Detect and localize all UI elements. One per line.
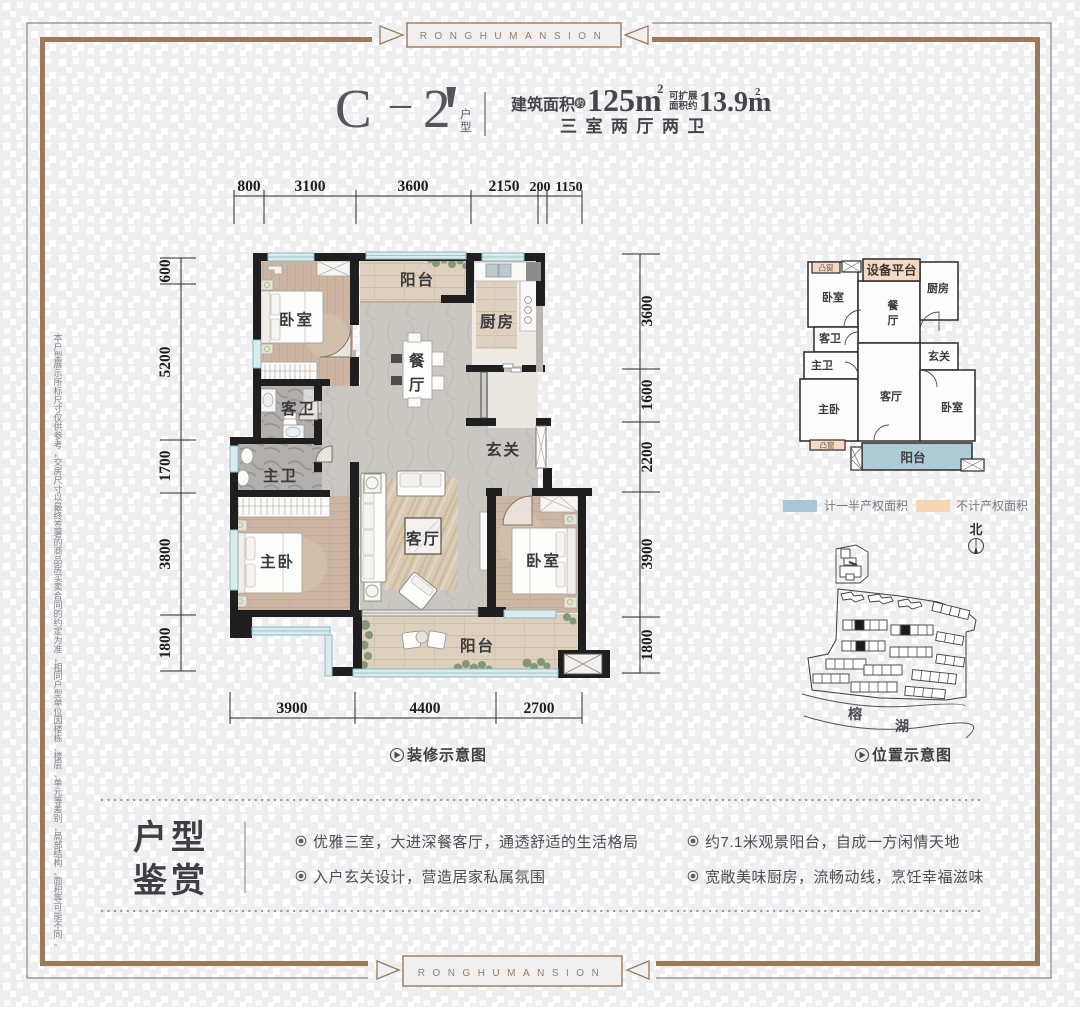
- svg-text:主卧: 主卧: [818, 402, 840, 416]
- svg-text:–: –: [389, 81, 412, 127]
- svg-text:厅: 厅: [888, 314, 899, 327]
- svg-text:2700: 2700: [524, 700, 555, 717]
- svg-text:凸窗: 凸窗: [819, 263, 834, 273]
- svg-text:客卫: 客卫: [818, 331, 841, 345]
- svg-text:设备平台: 设备平台: [866, 263, 916, 278]
- svg-text:湖: 湖: [895, 718, 909, 734]
- svg-text:本户型展示所标尺寸仅供参考，交房尺寸以最终签署的商品房买卖合: 本户型展示所标尺寸仅供参考，交房尺寸以最终签署的商品房买卖合同的约定为准，相同户…: [53, 332, 62, 948]
- svg-text:位置示意图: 位置示意图: [872, 746, 952, 764]
- svg-text:主卫: 主卫: [811, 358, 833, 372]
- svg-text:厅: 厅: [409, 376, 427, 394]
- svg-text:主卫: 主卫: [263, 466, 298, 485]
- svg-text:卧室: 卧室: [526, 551, 561, 570]
- svg-text:户型: 户型: [133, 819, 209, 857]
- svg-text:1800: 1800: [157, 627, 174, 658]
- svg-text:2150: 2150: [489, 178, 520, 195]
- svg-text:2: 2: [423, 78, 451, 139]
- svg-text:阳台: 阳台: [400, 270, 435, 289]
- svg-text:榕: 榕: [848, 706, 863, 722]
- svg-text:RONGHUMANSION: RONGHUMANSION: [420, 31, 609, 42]
- svg-text:客厅: 客厅: [879, 389, 902, 403]
- svg-text:计一半产权面积: 计一半产权面积: [824, 499, 908, 513]
- svg-text:宽敞美味厨房，流畅动线，烹饪幸福滋味: 宽敞美味厨房，流畅动线，烹饪幸福滋味: [705, 868, 984, 886]
- svg-text:不计产权面积: 不计产权面积: [956, 499, 1028, 513]
- svg-text:玄关: 玄关: [928, 349, 950, 363]
- svg-text:约7.1米观景阳台，自成一方闲情天地: 约7.1米观景阳台，自成一方闲情天地: [705, 834, 960, 851]
- svg-text:1800: 1800: [639, 629, 656, 660]
- svg-text:客厅: 客厅: [406, 529, 441, 548]
- svg-text:5200: 5200: [157, 346, 174, 377]
- svg-text:3900: 3900: [277, 700, 308, 717]
- svg-text:餐: 餐: [887, 298, 900, 312]
- svg-text:3800: 3800: [157, 538, 174, 569]
- svg-text:卧室: 卧室: [941, 400, 963, 414]
- svg-text:3600: 3600: [398, 178, 429, 195]
- svg-text:厨房: 厨房: [927, 281, 949, 295]
- svg-text:餐: 餐: [408, 351, 427, 370]
- svg-text:三室两厅两卫: 三室两厅两卫: [560, 116, 713, 136]
- svg-text:主卧: 主卧: [260, 552, 295, 571]
- svg-text:2: 2: [755, 86, 761, 98]
- svg-text:卧室: 卧室: [279, 310, 314, 329]
- svg-text:2: 2: [657, 81, 664, 96]
- svg-text:约: 约: [576, 98, 584, 108]
- svg-text:1150: 1150: [555, 180, 582, 195]
- svg-text:鉴赏: 鉴赏: [132, 862, 209, 900]
- svg-text:户: 户: [460, 107, 472, 121]
- svg-text:优雅三室，大进深餐客厅，通透舒适的生活格局: 优雅三室，大进深餐客厅，通透舒适的生活格局: [313, 834, 639, 851]
- svg-text:3900: 3900: [639, 538, 656, 569]
- svg-text:C: C: [335, 78, 372, 139]
- svg-text:面积约: 面积约: [669, 100, 698, 112]
- svg-text:阳台: 阳台: [900, 450, 925, 465]
- svg-text:阳台: 阳台: [460, 636, 495, 655]
- svg-text:厨房: 厨房: [480, 312, 515, 331]
- svg-text:800: 800: [237, 178, 261, 195]
- svg-text:入户玄关设计，营造居家私属氛围: 入户玄关设计，营造居家私属氛围: [313, 869, 546, 886]
- svg-text:客卫: 客卫: [281, 399, 316, 418]
- svg-text:3600: 3600: [639, 295, 656, 326]
- svg-text:装修示意图: 装修示意图: [406, 746, 487, 764]
- svg-text:建筑面积: 建筑面积: [511, 95, 575, 114]
- svg-text:型: 型: [460, 120, 472, 134]
- svg-text:2200: 2200: [639, 441, 656, 472]
- svg-text:200: 200: [530, 180, 551, 195]
- svg-text:凸窗: 凸窗: [820, 440, 835, 450]
- svg-text:北: 北: [969, 522, 982, 537]
- svg-text:1600: 1600: [639, 379, 656, 410]
- svg-text:玄关: 玄关: [486, 440, 521, 459]
- svg-text:RONGHUMANSION: RONGHUMANSION: [418, 968, 607, 979]
- svg-text:4400: 4400: [410, 700, 441, 717]
- svg-text:3100: 3100: [295, 178, 326, 195]
- svg-text:卧室: 卧室: [822, 290, 844, 304]
- svg-text:125m: 125m: [587, 82, 662, 118]
- svg-text:1700: 1700: [157, 450, 174, 481]
- svg-text:600: 600: [157, 259, 174, 283]
